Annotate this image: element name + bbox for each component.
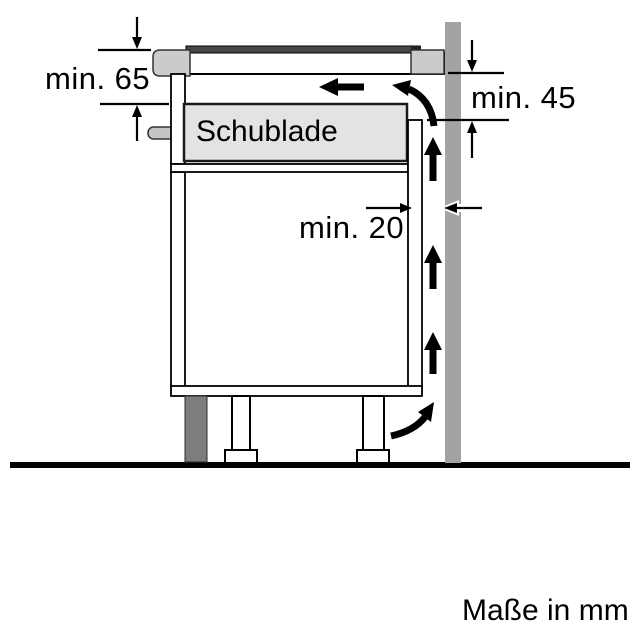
plinth-panel [185,396,207,462]
drawer-rail [171,164,408,172]
drawer-label: Schublade [196,117,338,147]
dimension-arrowhead-up [132,105,142,117]
units-note: Maße in mm [462,596,629,626]
cabinet-bottom-panel [171,386,422,396]
dimension-label-min-20: min. 20 [299,212,404,243]
hob-left-trim [153,50,190,76]
airflow-arrowhead-up [424,137,442,155]
dimension-label-min-65: min. 65 [45,63,150,94]
dimension-arrowhead-down [132,37,142,49]
cabinet-leg-back [357,396,389,463]
cabinet-back-panel [408,120,422,388]
floor-line [10,462,630,468]
wall [445,22,461,463]
dimension-label-min-45: min. 45 [471,82,576,113]
airflow-arrowhead-left [319,78,338,96]
airflow-arrowhead-up [424,332,442,350]
hob-glass-top [186,46,420,53]
hob-body [156,52,444,74]
airflow-arrow-curve-bottom-icon [391,417,425,436]
airflow-arrowhead-curve-top [392,80,411,96]
airflow-arrowhead-up [424,245,442,263]
hob-right-trim [411,50,444,74]
leg-shaft [363,396,384,450]
leg-shaft [232,396,250,450]
leg-foot [357,450,389,463]
installation-diagram: min. 65 min. 45 min. 20 Schublade Maße i… [0,0,640,640]
cabinet-leg-front [225,396,257,463]
leg-foot [225,450,257,463]
dimension-arrowhead-down [467,60,477,72]
dimension-arrowhead-up [467,121,477,133]
cabinet-front-panel [171,172,185,387]
